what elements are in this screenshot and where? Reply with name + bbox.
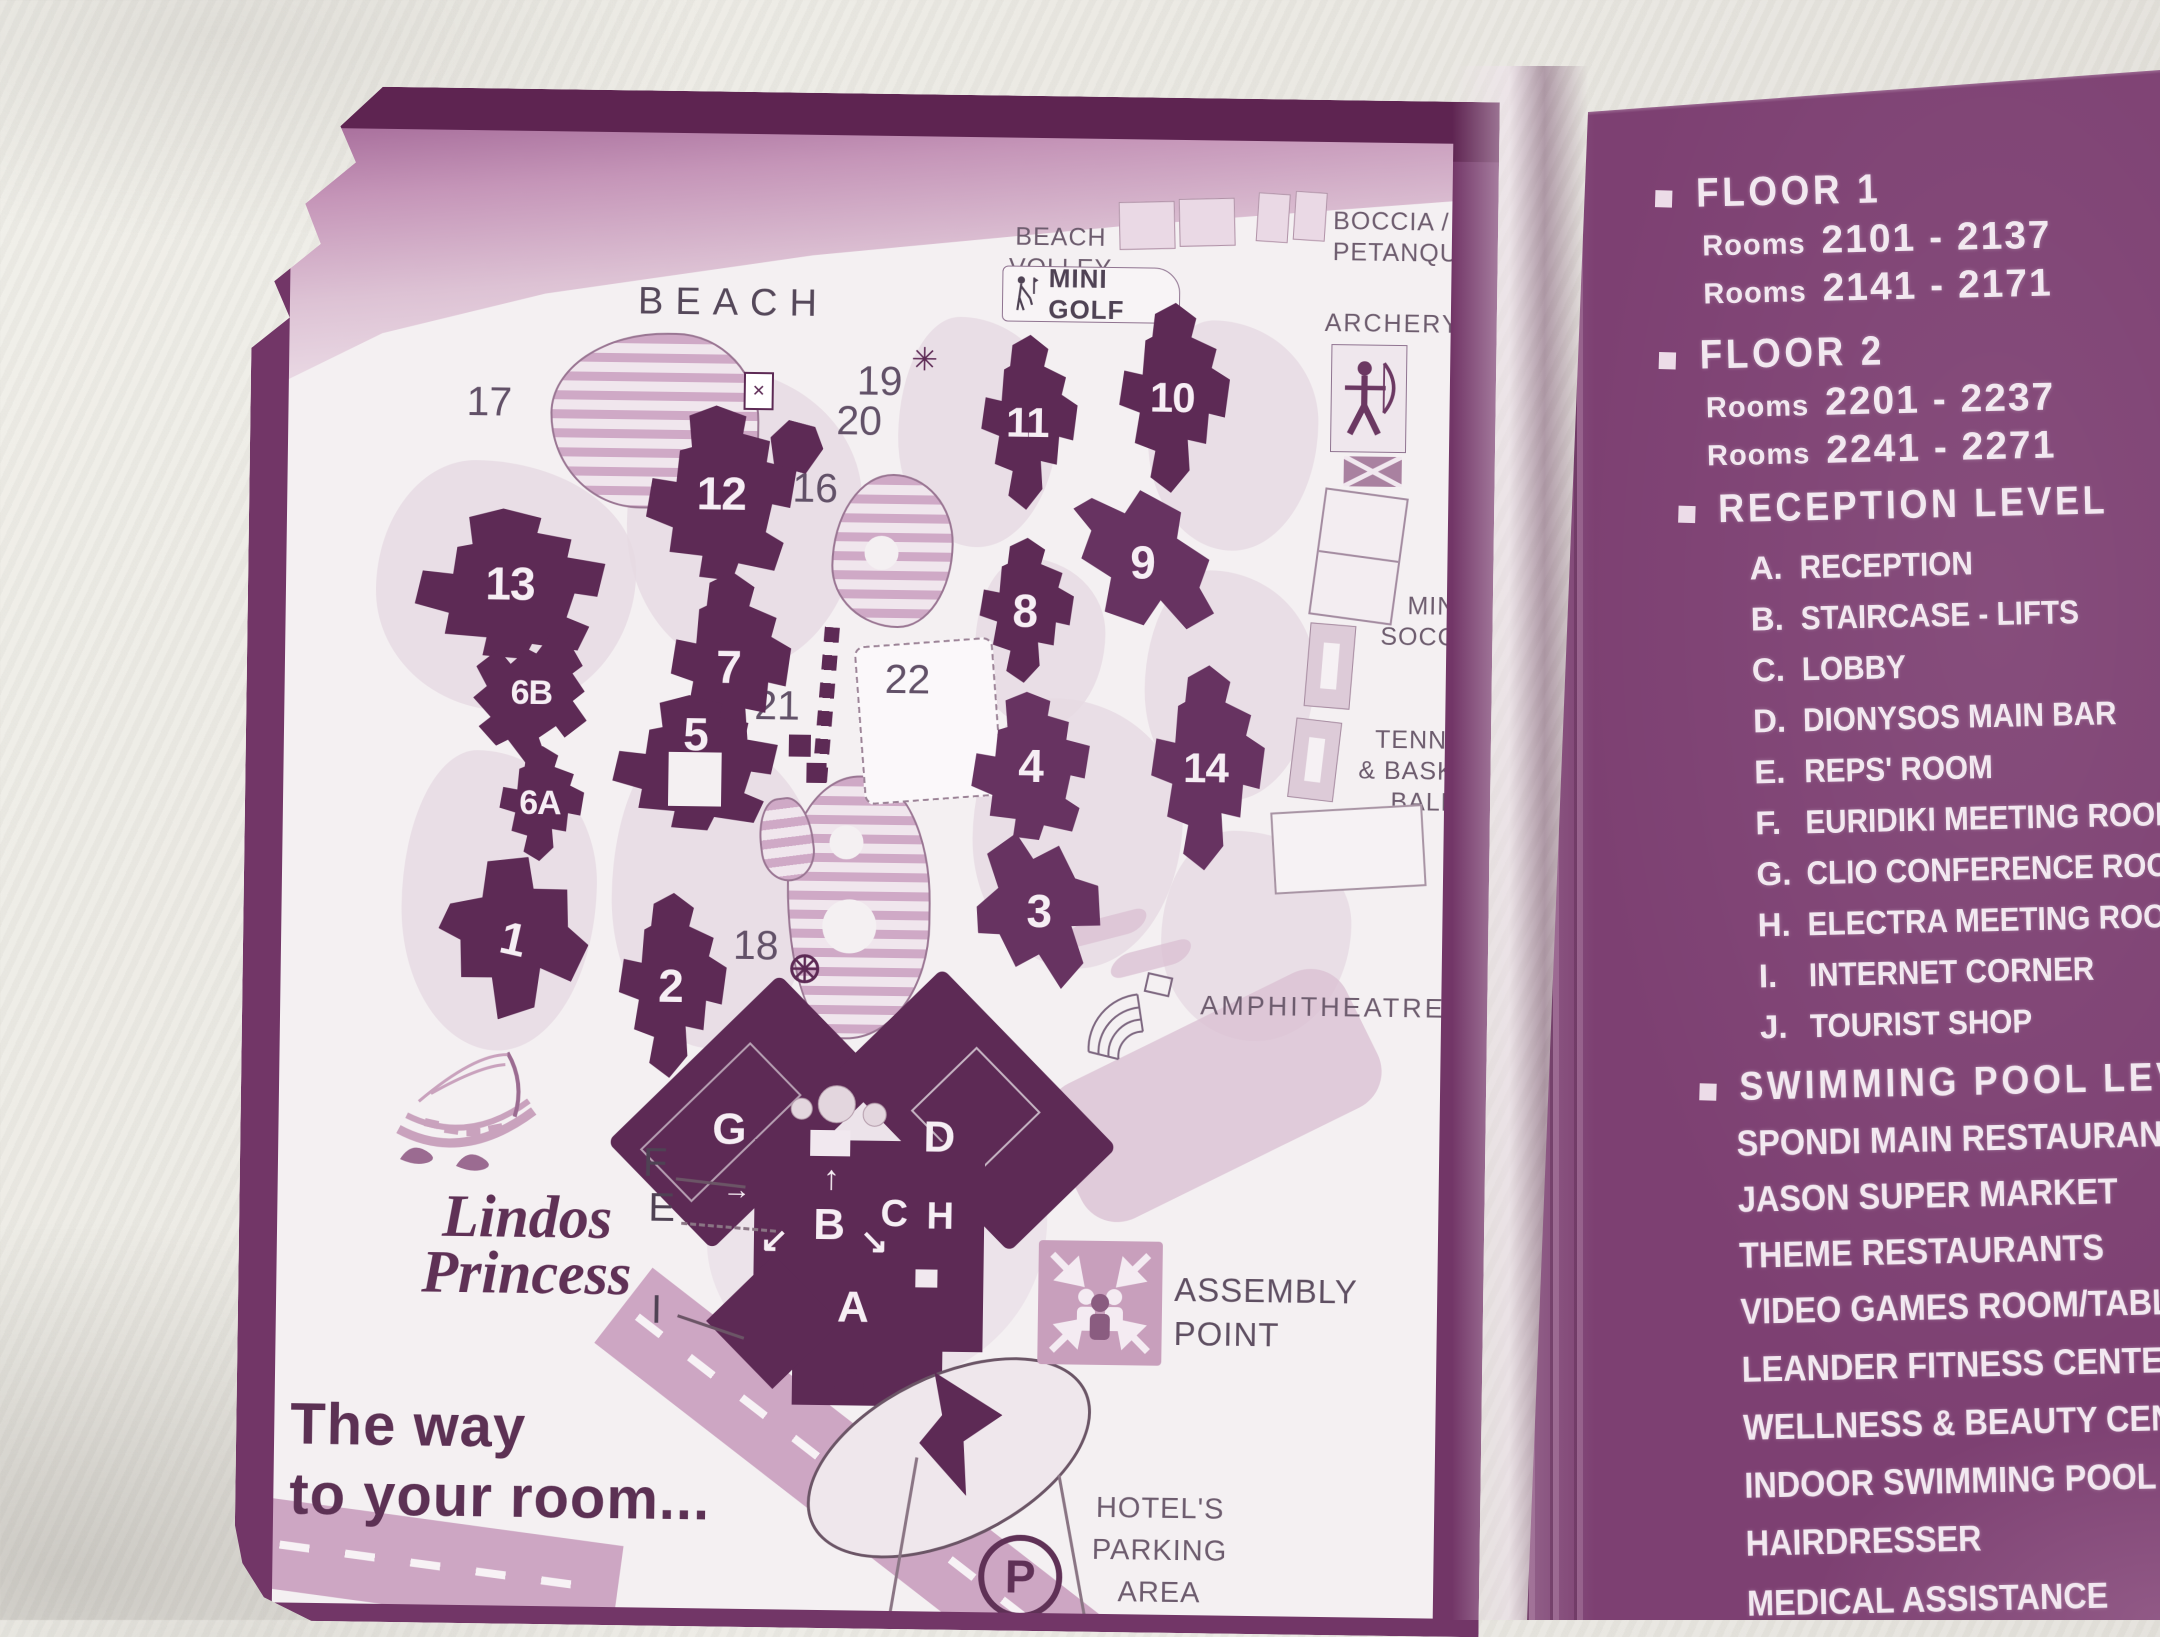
- boccia-court-icon: [1293, 191, 1328, 242]
- small-block: [789, 735, 811, 757]
- pool-item: MEDICAL ASSISTANCE: [1747, 1574, 2149, 1625]
- ship-logo: [378, 1041, 560, 1193]
- pool-item: SPONDI MAIN RESTAURANT: [1736, 1112, 2160, 1165]
- pool-island: [822, 899, 877, 954]
- tagline: The way to your room...: [289, 1390, 712, 1536]
- pool-item: VIDEO GAMES ROOM/TABLE TENNIS: [1740, 1276, 2160, 1333]
- boccia-label: BOCCIA / PETANQUE: [1333, 206, 1454, 270]
- photo-of-hotel-map-leaflet: BEACH BEACH VOLLEY BALL MINI GOLF: [0, 0, 2160, 1620]
- brand-name: Lindos Princess: [316, 1186, 738, 1304]
- bullet-square: [1659, 352, 1676, 369]
- archery-label: ARCHERY: [1325, 308, 1454, 341]
- legend-content: FLOOR 1 Rooms2101 - 2137 Rooms2141 - 217…: [1500, 45, 2160, 1620]
- letter-f: F: [643, 1141, 668, 1186]
- legend-page: FLOOR 1 Rooms2101 - 2137 Rooms2141 - 217…: [1500, 60, 2160, 1620]
- basket-court-icon: [1287, 717, 1342, 802]
- floor2-rooms-row: Rooms2201 - 2237: [1705, 375, 2055, 427]
- reception-item: A.RECEPTION: [1749, 544, 1992, 587]
- pool-item: HAIRDRESSER: [1745, 1517, 2008, 1565]
- area-17-label: 17: [466, 378, 512, 426]
- bullet-square: [1655, 190, 1672, 207]
- reception-item: C.LOBBY: [1751, 648, 1917, 690]
- reception-item: F.EURIDIKI MEETING ROOM: [1755, 794, 2160, 843]
- assembly-point-glyph: [1037, 1240, 1163, 1366]
- flower-icon: ✳: [911, 340, 938, 378]
- courtyard: [668, 752, 722, 807]
- arrow-down-right-icon: ↘: [860, 1222, 889, 1262]
- bullet-square: [1678, 506, 1695, 523]
- letter-a: A: [833, 1283, 874, 1332]
- reception-item: H.ELECTRA MEETING ROOM: [1757, 896, 2160, 945]
- letter-g: G: [709, 1105, 750, 1154]
- volleyball-court-icon: [1119, 201, 1176, 250]
- junction-x-icon: ✕: [744, 372, 775, 410]
- arrow-down-left-icon: ↙: [760, 1220, 789, 1260]
- bullet-square: [1699, 1083, 1716, 1100]
- reception-item: J.TOURIST SHOP: [1760, 1002, 2058, 1047]
- pool-item: JASON SUPER MARKET: [1737, 1169, 2160, 1221]
- reception-item: G.CLIO CONFERENCE ROOM: [1756, 844, 2160, 893]
- lift-box: [810, 1130, 850, 1157]
- reception-item: I.INTERNET CORNER: [1758, 949, 2126, 995]
- floor1-title: FLOOR 1: [1696, 165, 1903, 217]
- area-20-label: 20: [836, 397, 882, 445]
- map-area: BEACH BEACH VOLLEY BALL MINI GOLF: [272, 128, 1453, 1619]
- mini-soccer-label: MINI SOCCER: [1380, 591, 1453, 655]
- reception-title: RECEPTION LEVEL: [1718, 477, 2152, 532]
- archery-box: [1330, 344, 1408, 453]
- floor1-rooms-row: Rooms2141 - 2171: [1703, 262, 2053, 314]
- pool-item: WELLNESS & BEAUTY CENTER: [1743, 1394, 2160, 1448]
- area-18-label: 18: [733, 922, 779, 970]
- letter-d: D: [919, 1113, 960, 1162]
- small-white-box: [915, 1269, 937, 1287]
- volleyball-court-icon: [1179, 198, 1236, 247]
- mini-golf-sign: MINI GOLF: [1002, 265, 1181, 323]
- reception-item: B.STAIRCASE - LIFTS: [1750, 592, 2110, 638]
- golfer-icon: [1011, 272, 1039, 316]
- target-x-icon: [1344, 456, 1402, 487]
- parking-label: HOTEL'S PARKING AREA: [1079, 1487, 1241, 1615]
- tennis-court-icon: [1304, 622, 1357, 710]
- boccia-court-icon: [1256, 192, 1291, 243]
- reception-item: D.DIONYSOS MAIN BAR: [1753, 693, 2152, 740]
- pool-item: INDOOR SWIMMING POOL: [1744, 1454, 2160, 1506]
- pool-island: [864, 536, 898, 570]
- parking-icon: P: [978, 1534, 1063, 1618]
- area-22-label: 22: [884, 656, 930, 704]
- map-page: BEACH BEACH VOLLEY BALL MINI GOLF: [234, 85, 1500, 1637]
- arrow-up-icon: ↑: [823, 1159, 841, 1198]
- road-dashes: [272, 1532, 606, 1594]
- assembly-point-icon: [1037, 1240, 1163, 1366]
- field-midline: [1319, 550, 1399, 563]
- floor2-title: FLOOR 2: [1699, 327, 1906, 379]
- pool-item: THEME RESTAURANTS: [1739, 1226, 2145, 1277]
- pool-title: SWIMMING POOL LEVEL: [1739, 1052, 2160, 1110]
- floor2-rooms-row: Rooms2241 - 2271: [1706, 423, 2056, 475]
- wheel-icon: [786, 951, 822, 987]
- steps-21: [812, 627, 840, 783]
- court-key: [1320, 643, 1340, 690]
- pool-island: [829, 825, 863, 859]
- floor1-rooms-row: Rooms2101 - 2137: [1702, 214, 2052, 266]
- pool-item: LEANDER FITNESS CENTER: [1741, 1338, 2160, 1391]
- amphitheatre-label: AMPHITHEATRE: [1200, 990, 1446, 1024]
- assembly-point-label: ASSEMBLY POINT: [1173, 1268, 1358, 1359]
- small-block: [806, 763, 826, 783]
- amphitheatre-icon: [1073, 957, 1195, 1079]
- court-key: [1304, 737, 1325, 782]
- court-outline-box: [1270, 804, 1426, 894]
- letter-b: B: [809, 1201, 850, 1250]
- reception-item: E.REPS' ROOM: [1754, 748, 2014, 792]
- archer-icon: [1337, 352, 1400, 445]
- letter-h: H: [920, 1192, 961, 1241]
- beach-label: BEACH: [638, 280, 830, 326]
